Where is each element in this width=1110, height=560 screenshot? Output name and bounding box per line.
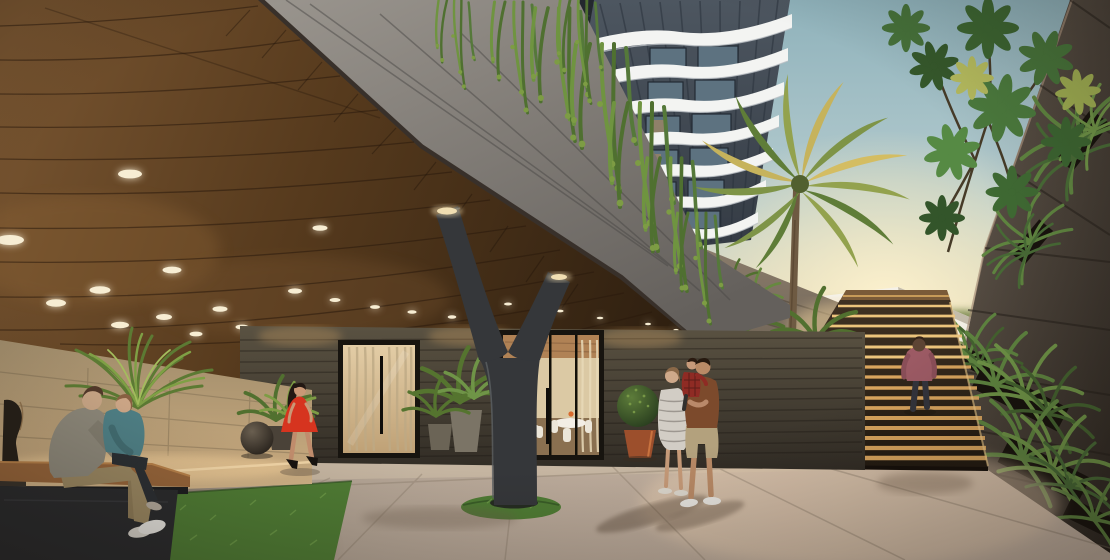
vignette (0, 0, 1110, 560)
courtyard-scene (0, 0, 1110, 560)
architectural-rendering (0, 0, 1110, 560)
